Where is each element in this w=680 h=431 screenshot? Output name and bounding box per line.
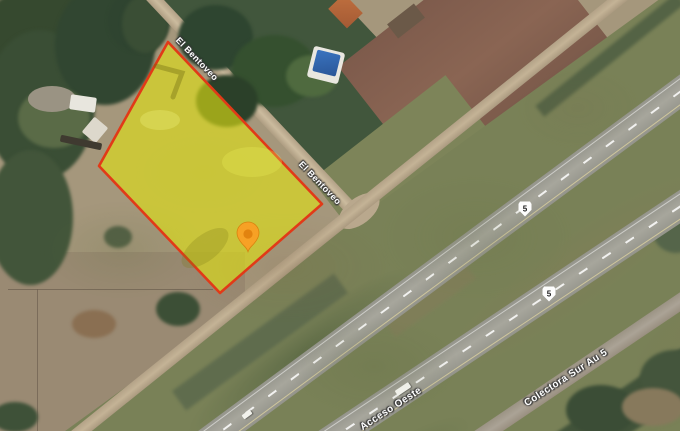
parcel-ground-mark — [222, 147, 282, 177]
parcel-ground-mark — [140, 110, 180, 130]
satellite-map[interactable]: El Bentoveo El Bentoveo Acceso Oeste Col… — [0, 0, 680, 431]
